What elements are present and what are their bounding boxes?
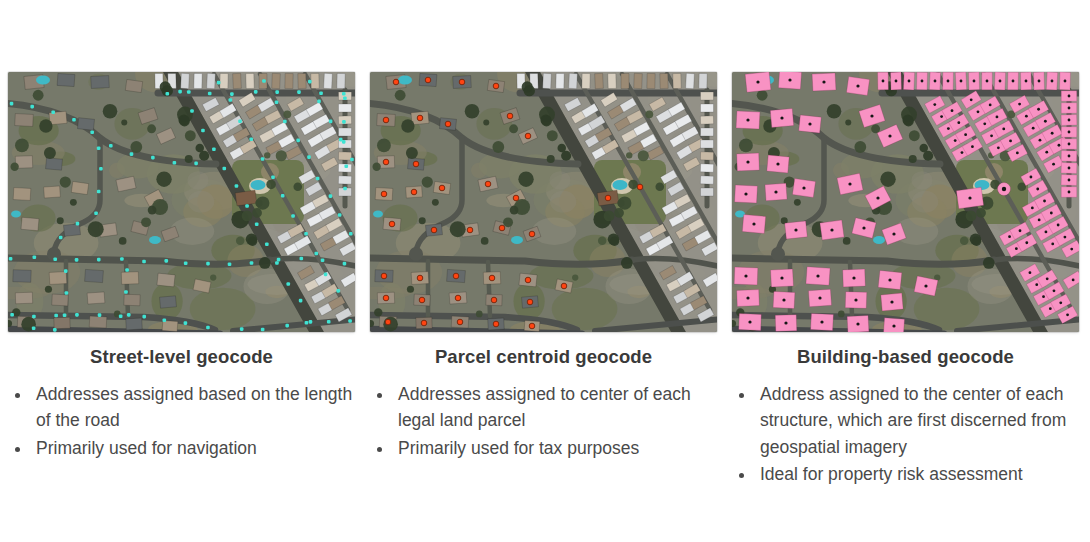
geocode-comparison-figure: Street-level geocode Addresses assigned …	[0, 0, 1090, 488]
bullet-item: Addresses assigned based on the length o…	[32, 381, 355, 434]
bullet-item: Primarily used for tax purposes	[394, 435, 717, 461]
bullet-item: Address assigned to the center of each s…	[756, 381, 1079, 460]
bullet-list: Addresses assigned to center of each leg…	[370, 381, 717, 461]
satellite-image-parcel-dots	[370, 72, 717, 332]
bullet-list: Addresses assigned based on the length o…	[8, 381, 355, 461]
panel-title: Parcel centroid geocode	[370, 346, 717, 368]
aerial-map-street-level	[8, 72, 355, 332]
panel-title: Street-level geocode	[8, 346, 355, 368]
panel-parcel-centroid: Parcel centroid geocode Addresses assign…	[370, 72, 717, 488]
aerial-map-parcel-centroid	[370, 72, 717, 332]
panel-title: Building-based geocode	[732, 346, 1079, 368]
satellite-image-building-footprints	[732, 72, 1079, 332]
panel-building-based: Building-based geocode Address assigned …	[732, 72, 1079, 488]
bullet-item: Ideal for property risk assessment	[756, 461, 1079, 487]
bullet-item: Addresses assigned to center of each leg…	[394, 381, 717, 434]
panel-street-level: Street-level geocode Addresses assigned …	[8, 72, 355, 488]
satellite-image-street-dots	[8, 72, 355, 332]
bullet-item: Primarily used for navigation	[32, 435, 355, 461]
aerial-map-building-based	[732, 72, 1079, 332]
bullet-list: Address assigned to the center of each s…	[732, 381, 1079, 487]
